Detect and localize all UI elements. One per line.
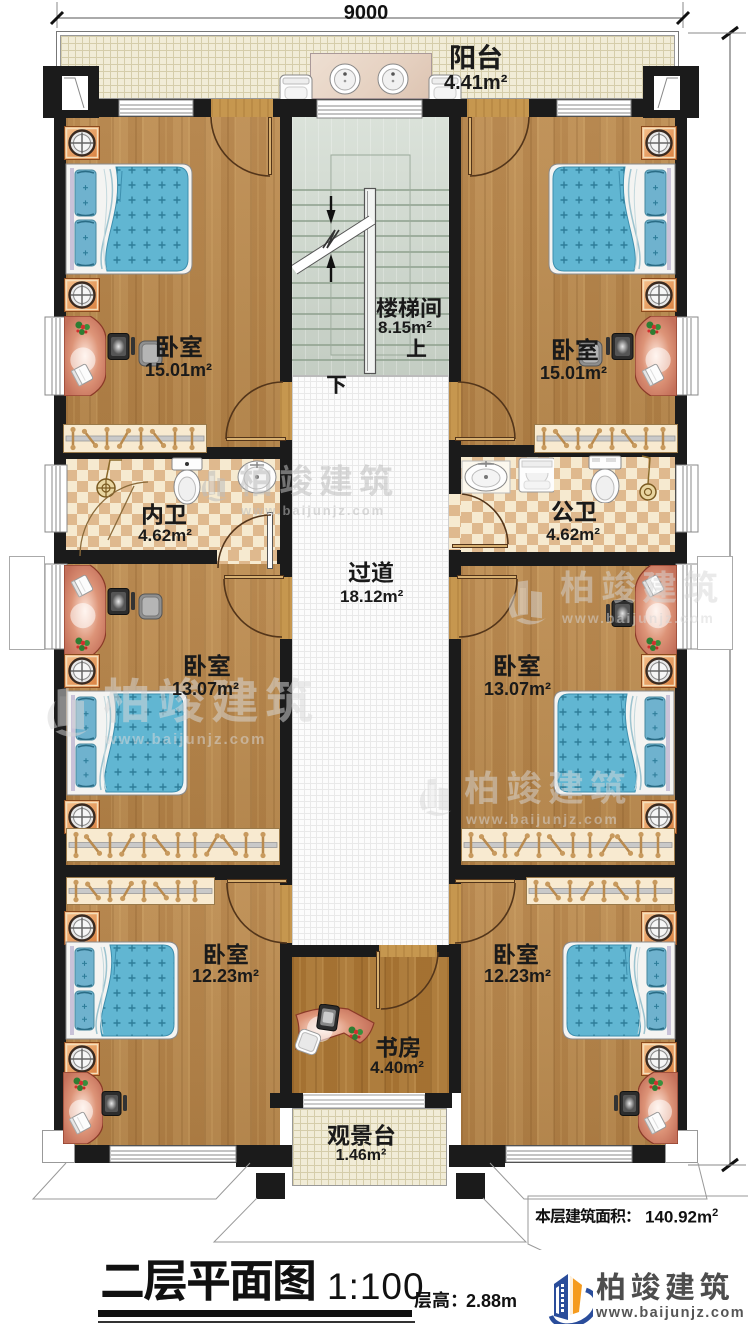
svg-text:www.baijunjz.com: www.baijunjz.com	[561, 610, 715, 626]
svg-text:www.baijunjz.com: www.baijunjz.com	[240, 503, 385, 518]
svg-text:www.baijunjz.com: www.baijunjz.com	[465, 811, 619, 827]
svg-text:www.baijunjz.com: www.baijunjz.com	[104, 731, 266, 748]
